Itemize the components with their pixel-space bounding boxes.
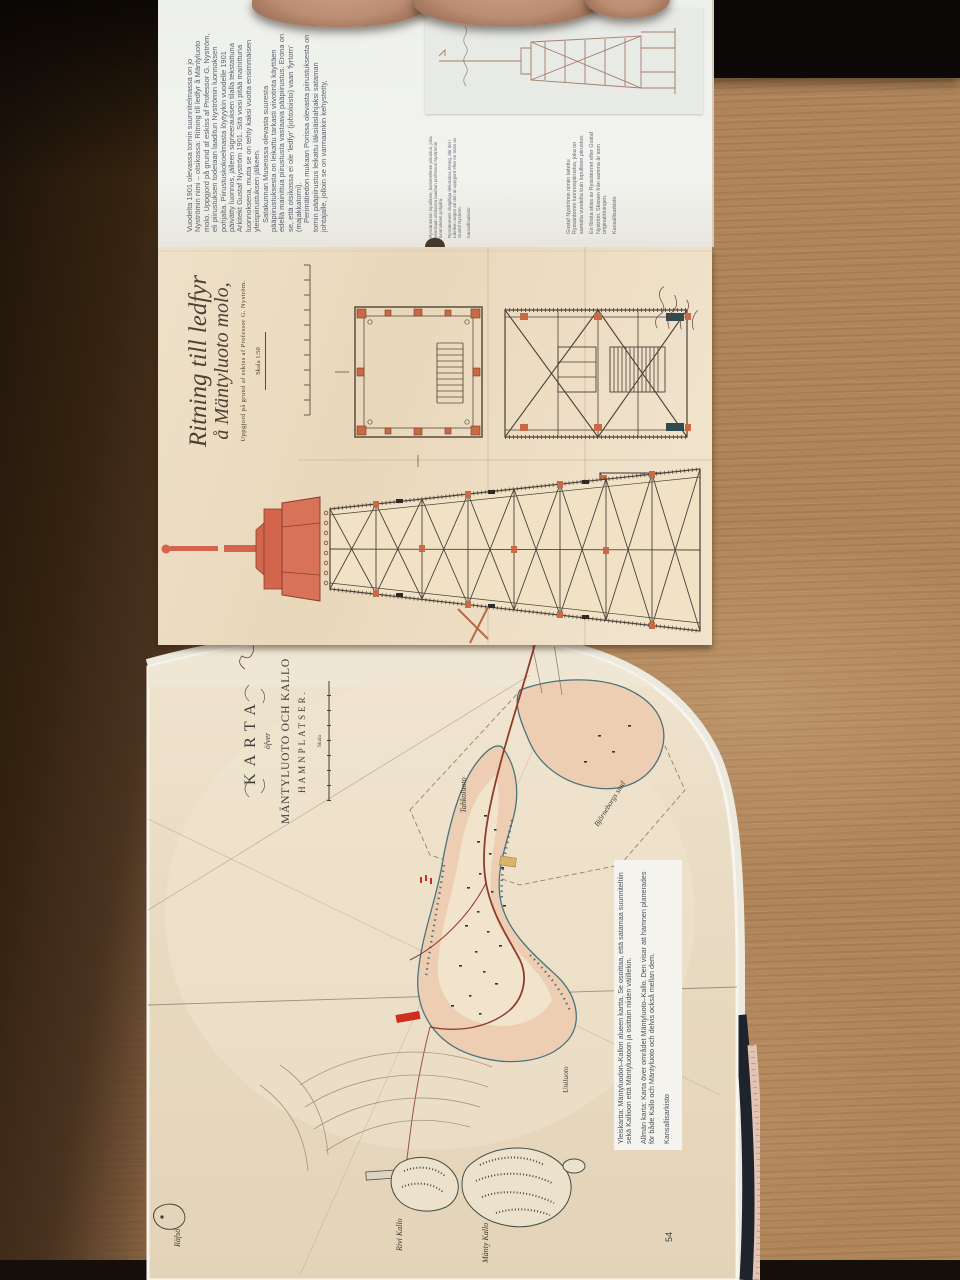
- drawing-title-line2: å Mäntyluoto molo,: [211, 256, 233, 466]
- caption1-finnish: Ryssäntornin lopullinen, koristeellinen …: [428, 126, 443, 238]
- article-paragraph-1: Vuodelta 1901 olevassa tornin suunnitelm…: [186, 30, 262, 232]
- drawing-scale-label: Skala 1:50: [255, 256, 262, 466]
- article-text: Vuodelta 1901 olevassa tornin suunnitelm…: [186, 30, 338, 232]
- drawing-subtitle: Uppgjord på grund af eskiss af Professor…: [240, 256, 247, 466]
- map-caption-finnish: Yleiskartta: Mäntyluodon–Kallon alueen k…: [617, 866, 634, 1144]
- svg-text:Räfsö: Räfsö: [173, 1229, 182, 1248]
- page-number: 54: [664, 1228, 678, 1242]
- map-caption-swedish: Allmän karta: Karta över området Mäntylu…: [640, 866, 657, 1144]
- article-paragraph-2: Satakunnan Museossa olevasta suuresta pä…: [262, 30, 304, 232]
- label-manty-kallo: Mänty Kallo: [481, 1223, 490, 1264]
- caption2-finnish: Gustaf Nyströmin nimiin laitettu Ryssänt…: [566, 128, 585, 234]
- svg-text:Skala: Skala: [317, 734, 323, 747]
- drawing-scale-rule: [265, 332, 266, 390]
- map-caption-source: Kansallisarkisto: [663, 866, 671, 1144]
- photo-caption-1: Ryssäntornin lopullinen, koristeellinen …: [428, 126, 480, 238]
- svg-text:MÄNTYLUOTO OCH KALLO: MÄNTYLUOTO OCH KALLO: [278, 658, 292, 824]
- label-uniluoto: Uniluoto: [561, 1066, 570, 1093]
- svg-text:öfver: öfver: [263, 732, 272, 749]
- label-tahkoluoto: Tahkoluoto: [459, 777, 468, 813]
- photo-of-open-book: Räfsö Tahkoluoto Björneborgs stad Uniluo…: [0, 0, 960, 1280]
- caption1-swedish: Ryssätornets slutgiltiga dekorativa ritn…: [447, 126, 462, 238]
- drawing-title-line1: Ritning till ledfyr: [186, 256, 211, 466]
- photo-caption-2: Gustaf Nyströmin nimiin laitettu Ryssänt…: [566, 128, 658, 234]
- svg-text:HAMNPLATSER.: HAMNPLATSER.: [297, 689, 307, 793]
- caption2-swedish: En första skiss av Ryssätornet efter Gus…: [589, 128, 608, 234]
- caption1-source: Kansallisarkisto: [466, 126, 471, 238]
- caption2-source: Kansallisarkisto: [612, 128, 618, 234]
- svg-text:KARTA: KARTA: [242, 697, 259, 785]
- drawing-title: Ritning till ledfyr å Mäntyluoto molo, U…: [186, 256, 302, 466]
- article-paragraph-3: Perimätiedon mukaan Porissa olevasta pii…: [303, 30, 328, 232]
- label-rivi-kallo: Rivi Kallo: [395, 1218, 404, 1252]
- map-caption: Yleiskartta: Mäntyluodon–Kallon alueen k…: [614, 860, 682, 1150]
- thumb-notch: [425, 238, 445, 247]
